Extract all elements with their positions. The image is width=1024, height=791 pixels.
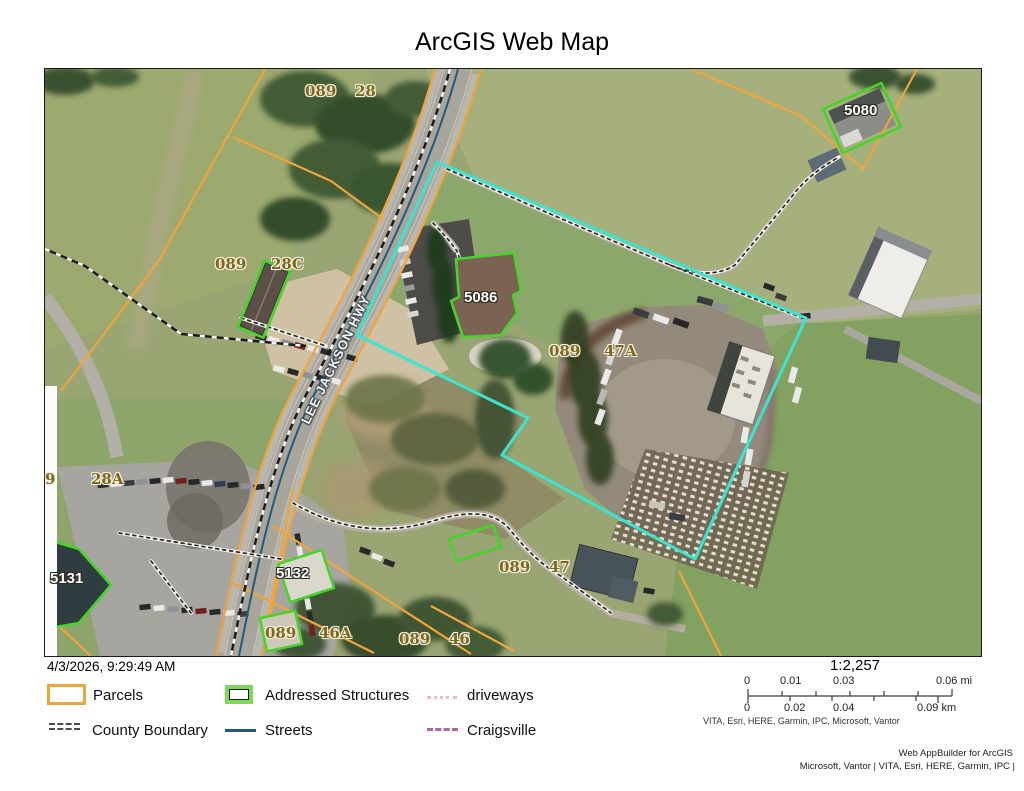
legend-label-driveways: driveways	[467, 687, 534, 704]
legend-label-craigsville: Craigsville	[467, 722, 536, 739]
parcel-label: 089	[399, 630, 430, 648]
legend-swatch-addressed-structures	[225, 685, 253, 704]
data-credit: Microsoft, Vantor | VITA, Esri, HERE, Ga…	[800, 761, 1015, 772]
export-timestamp: 4/3/2026, 9:29:49 AM	[47, 659, 175, 674]
scale-mi-tick: 0.06 mi	[936, 675, 972, 687]
scale-mi-tick: 0	[744, 675, 750, 687]
map-attribution: VITA, Esri, HERE, Garmin, IPC, Microsoft…	[703, 716, 900, 726]
parcel-label: 28C	[271, 255, 304, 273]
structure-label: 5086	[464, 289, 497, 307]
page-title: ArcGIS Web Map	[0, 28, 1024, 57]
legend-swatch-driveways	[427, 696, 457, 699]
structure-label: 5131	[50, 570, 83, 588]
parcel-label: 46A	[319, 624, 352, 642]
scale-mi-tick: 0.03	[833, 675, 854, 687]
parcel-label: 28	[355, 82, 376, 100]
scale-km-tick: 0	[744, 702, 750, 714]
print-page: ArcGIS Web Map	[0, 0, 1024, 791]
legend-swatch-county-boundary	[49, 723, 80, 730]
legend-swatch-parcels	[47, 684, 86, 705]
legend-label-structures: Addressed Structures	[265, 687, 409, 704]
legend-label-county: County Boundary	[92, 722, 208, 739]
scale-ratio: 1:2,257	[780, 657, 930, 674]
parcel-label: 9	[45, 470, 55, 488]
parcel-label: 089	[305, 82, 336, 100]
scale-km-tick: 0.04	[833, 702, 854, 714]
parcel-label: 089	[265, 624, 296, 642]
parcel-label: 089	[215, 255, 246, 273]
legend-swatch-craigsville	[427, 728, 458, 731]
legend-swatch-streets	[225, 729, 256, 732]
scale-km-tick: 0.09 km	[917, 702, 956, 714]
parcel-label: 28A	[91, 470, 124, 488]
imagery-edge	[45, 386, 57, 656]
app-credit: Web AppBuilder for ArcGIS	[899, 748, 1013, 759]
parcel-label: 46	[449, 630, 470, 648]
parcel-label: 089	[499, 558, 530, 576]
structure-label: 5132	[276, 565, 309, 583]
scale-km-tick: 0.02	[784, 702, 805, 714]
parcel-label: 089	[549, 342, 580, 360]
structure-label: 5080	[844, 102, 877, 120]
legend-label-streets: Streets	[265, 722, 313, 739]
map-canvas: 089 28 089 28C 089 47A 9 28A 089 47 089 …	[44, 68, 982, 657]
parcel-label: 47A	[604, 342, 637, 360]
legend-label-parcels: Parcels	[93, 687, 143, 704]
parcel-label: 47	[549, 558, 570, 576]
scale-mi-tick: 0.01	[780, 675, 801, 687]
